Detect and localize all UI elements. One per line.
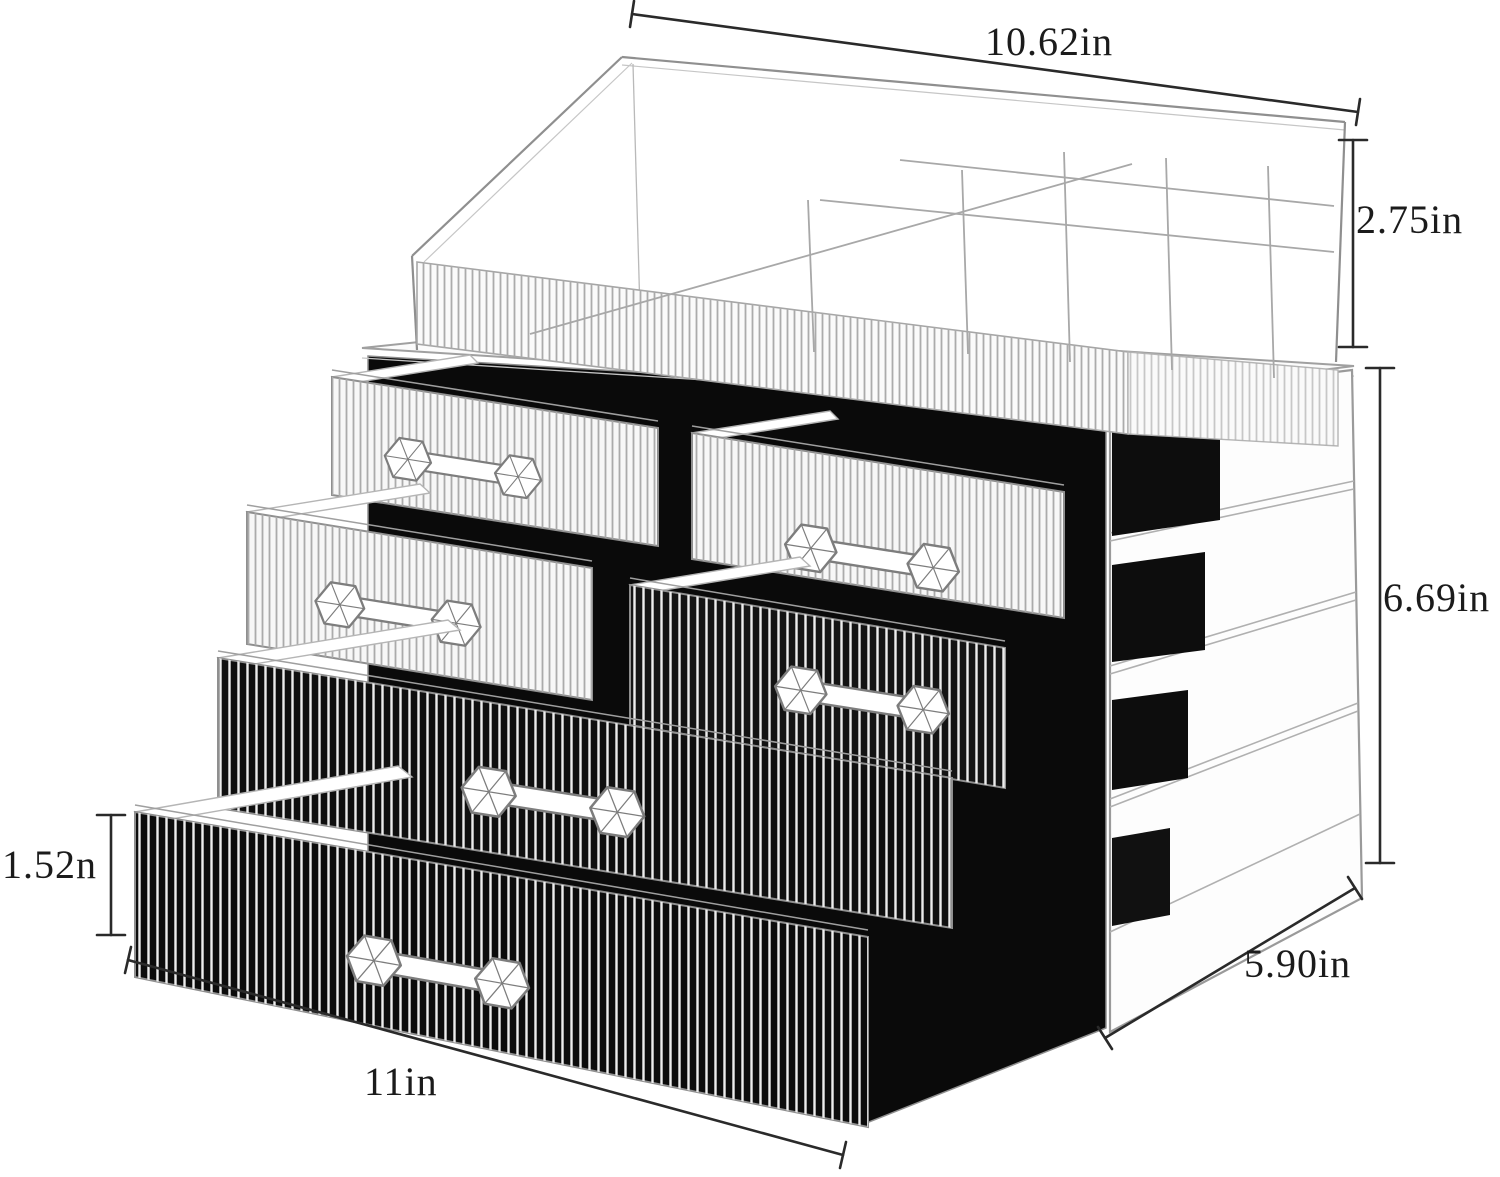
dimension-label-body-height: 6.69in bbox=[1383, 578, 1490, 618]
dimension-label-depth: 5.90in bbox=[1244, 944, 1351, 984]
dimension-label-bottom-width: 11in bbox=[364, 1062, 438, 1102]
dimension-label-drawer-height: 1.52n bbox=[2, 845, 97, 885]
product-dimension-image: 10.62in 2.75in 6.69in 1.52n 5.90in 11in bbox=[0, 0, 1500, 1177]
organizer-illustration bbox=[0, 0, 1500, 1177]
dimension-label-top-width: 10.62in bbox=[985, 22, 1113, 62]
dimension-line-drawer-height bbox=[97, 815, 125, 935]
dimension-label-tray-height: 2.75in bbox=[1356, 200, 1463, 240]
